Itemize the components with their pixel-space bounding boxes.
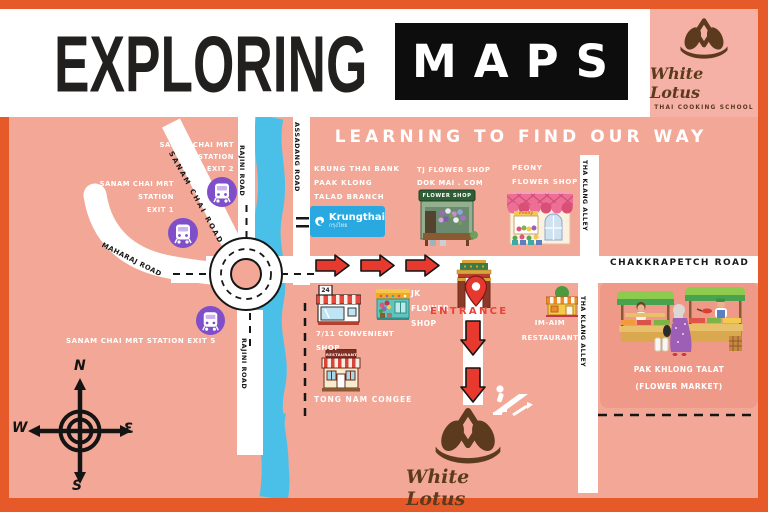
jk-flower-shop-illustration	[376, 286, 410, 320]
im-aim-label: IM-AIM RESTAURANT	[518, 316, 582, 346]
chakkrapetch-road-label: CHAKKRAPETCH ROAD	[610, 258, 749, 268]
brand-name: White Lotus	[406, 466, 530, 510]
assadang-road-label: ASSADANG ROAD	[293, 122, 301, 192]
lotus-icon	[676, 18, 732, 60]
roundabout	[210, 238, 282, 310]
market-label: PAK KHLONG TALAT (FLOWER MARKET)	[602, 361, 756, 395]
brand-tagline: THAI COOKING SCHOOL	[654, 105, 753, 111]
rajini-road-label-bottom: RAJINI ROAD	[240, 338, 248, 389]
congee-label: TONG NAM CONGEE	[314, 395, 412, 404]
poster: EXPLORING MAPS White Lotus THAI COOKING …	[0, 0, 768, 512]
im-aim-illustration	[546, 285, 578, 317]
frame-bottom	[0, 498, 768, 512]
map-subtitle: LEARNING TO FIND OUR WAY	[296, 127, 746, 147]
mrt-train-icon	[196, 306, 225, 335]
brand-panel: White Lotus THAI COOKING SCHOOL	[650, 9, 758, 117]
compass-e: Ɛ	[124, 421, 134, 437]
rajini-road-label-top: RAJINI ROAD	[238, 145, 246, 196]
peony-label: PEONY FLOWER SHOP	[512, 161, 578, 189]
page-title-boxed: MAPS	[395, 23, 628, 100]
location-pin-icon	[464, 275, 488, 308]
frame-left	[0, 117, 9, 512]
seven-eleven-sign: 24	[319, 287, 332, 294]
tj-shop-sign: FLOWER SHOP	[421, 193, 473, 199]
entrance-label: ENTRANCE	[430, 306, 508, 317]
seven-eleven-label: 7/11 CONVENIENT SHOP	[316, 327, 394, 355]
tj-flower-label: TJ FLOWER SHOP DOK MAI . COM	[417, 164, 491, 190]
brand-name: White Lotus	[650, 64, 758, 102]
compass-s: S	[72, 478, 82, 494]
market-illustration	[617, 286, 745, 360]
compass-rose	[20, 372, 140, 490]
tha-klang-label-upper: THA KLANG ALLEY	[581, 160, 588, 231]
tha-klang-label-lower: THA KLANG ALLEY	[579, 296, 586, 367]
tha-klang-lower	[578, 256, 598, 493]
compass-n: N	[74, 358, 86, 374]
bank-label: KRUNG THAI BANK PAAK KLONG TALAD BRANCH	[314, 162, 400, 204]
peony-shop-sign: Peony	[514, 211, 538, 216]
station-exit5-label: SANAM CHAI MRT STATION EXIT 5	[66, 337, 216, 345]
frame-right	[758, 0, 768, 512]
station-exit1-label: SANAM CHAI MRT STATION EXIT 1	[34, 178, 174, 217]
lotus-icon	[427, 408, 509, 465]
station-exit2-label: SANAM CHAI MRT STATION EXIT 2	[156, 139, 234, 175]
krungthai-logo: Krungthai กรุงไทย	[310, 206, 385, 237]
mrt-train-icon	[207, 177, 237, 207]
krungthai-bird-icon	[314, 211, 326, 233]
compass-w: W	[12, 420, 27, 436]
footer-brand: White Lotus THAI COOKING SCHOOL	[406, 408, 530, 512]
peony-shop-illustration	[507, 186, 573, 247]
mrt-train-icon	[168, 218, 198, 248]
